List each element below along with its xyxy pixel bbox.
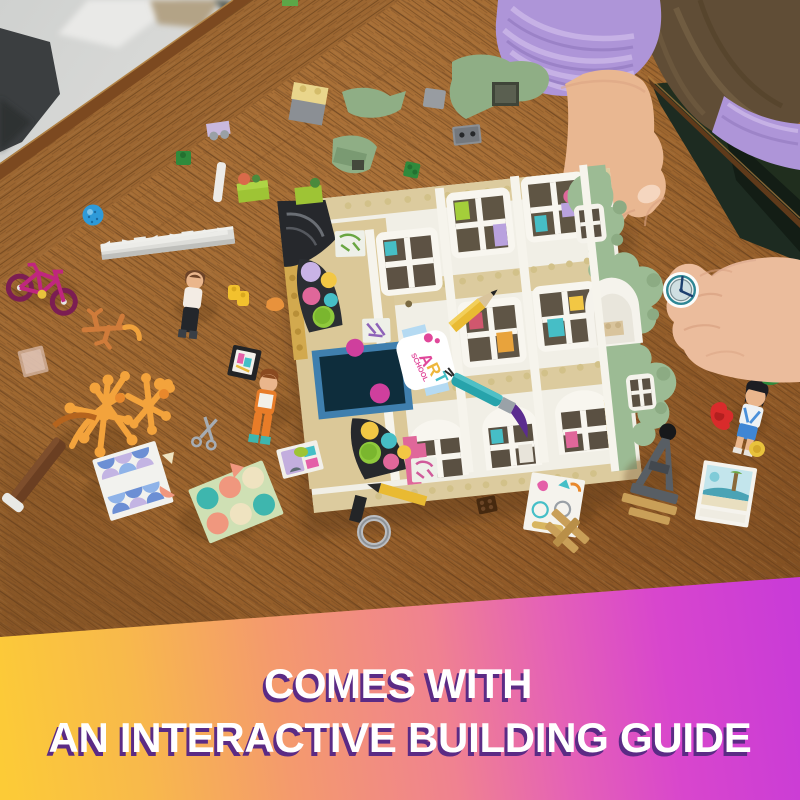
svg-text:AN INTERACTIVE BUILDING GUIDE: AN INTERACTIVE BUILDING GUIDE xyxy=(49,714,752,761)
svg-text:COMES WITH: COMES WITH xyxy=(264,660,532,707)
